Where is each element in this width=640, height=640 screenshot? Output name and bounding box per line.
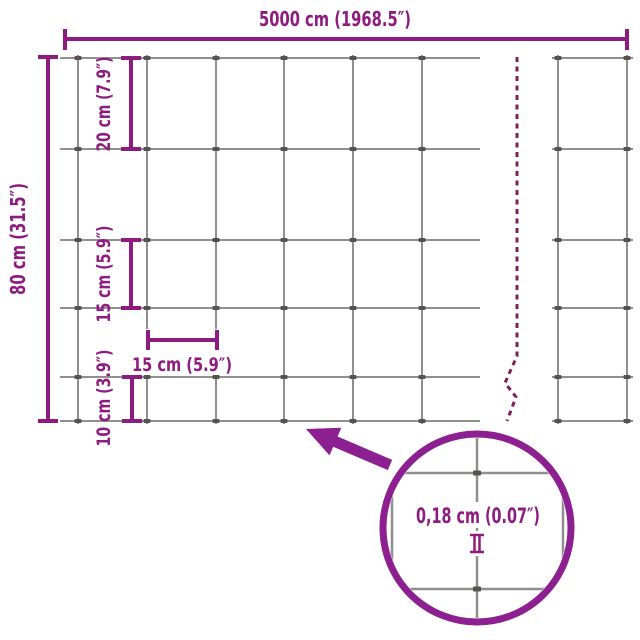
mesh-clip [350,238,357,242]
mesh-clip [213,419,220,423]
mesh-clip [75,147,82,151]
mesh-clip [555,147,562,151]
column-gap-label: 15 cm (5.9″) [132,354,232,376]
mesh-clip [555,56,562,60]
mesh-clip [419,419,426,423]
magnifier-arrow-icon [306,428,392,470]
fence-mesh-right [552,55,633,424]
mesh-clip [144,238,151,242]
mesh-clip [624,56,631,60]
mesh-clip [350,419,357,423]
mesh-clip [144,56,151,60]
mesh-clip [419,147,426,151]
mesh-clip [213,147,220,151]
mesh-clip [624,238,631,242]
mesh-clip [281,238,288,242]
mesh-clip [75,375,82,379]
diagram-canvas: 5000 cm (1968.5″) 80 cm (31.5″) 20 cm (7… [0,0,640,640]
mesh-clip [555,419,562,423]
mesh-clip [350,147,357,151]
mesh-clip [419,306,426,310]
mesh-clip [624,306,631,310]
mesh-clip [624,419,631,423]
mesh-clip [75,56,82,60]
row-gap-bottom-label: 10 cm (3.9″) [93,350,115,447]
mesh-clip [281,56,288,60]
mesh-clip [144,419,151,423]
mesh-clip [281,306,288,310]
mesh-clip [350,56,357,60]
fence-dimension-diagram: 5000 cm (1968.5″) 80 cm (31.5″) 20 cm (7… [0,0,640,640]
mesh-clip [75,419,82,423]
row-gap-top-bracket [121,58,141,149]
row-gap-middle-label: 15 cm (5.9″) [93,226,115,323]
height-dimension [38,57,58,421]
mesh-clip [555,238,562,242]
mesh-clip [419,375,426,379]
mesh-clip [350,306,357,310]
mesh-clip [624,375,631,379]
row-gap-top-label: 20 cm (7.9″) [93,57,115,152]
mesh-clip [213,238,220,242]
mesh-clip [419,56,426,60]
break-line [505,57,517,421]
mesh-clip [419,238,426,242]
wire-thickness-label: 0,18 cm (0.07″) [416,504,540,528]
mesh-clip [555,306,562,310]
mesh-clip [281,147,288,151]
mesh-clip [555,375,562,379]
width-dimension [65,29,627,50]
mesh-clip [281,419,288,423]
mesh-clip [281,375,288,379]
mesh-clip [213,56,220,60]
mesh-clip [144,306,151,310]
row-gap-middle-bracket [121,240,141,308]
mesh-clip [213,306,220,310]
row-gap-bottom-bracket [122,377,142,421]
width-dimension-label: 5000 cm (1968.5″) [259,7,411,31]
height-dimension-label: 80 cm (31.5″) [6,183,30,295]
mesh-clip [350,375,357,379]
mesh-clip [75,238,82,242]
detail-circle: 0,18 cm (0.07″) [383,434,571,622]
mesh-clip [75,306,82,310]
mesh-clip [144,147,151,151]
mesh-clip [624,147,631,151]
